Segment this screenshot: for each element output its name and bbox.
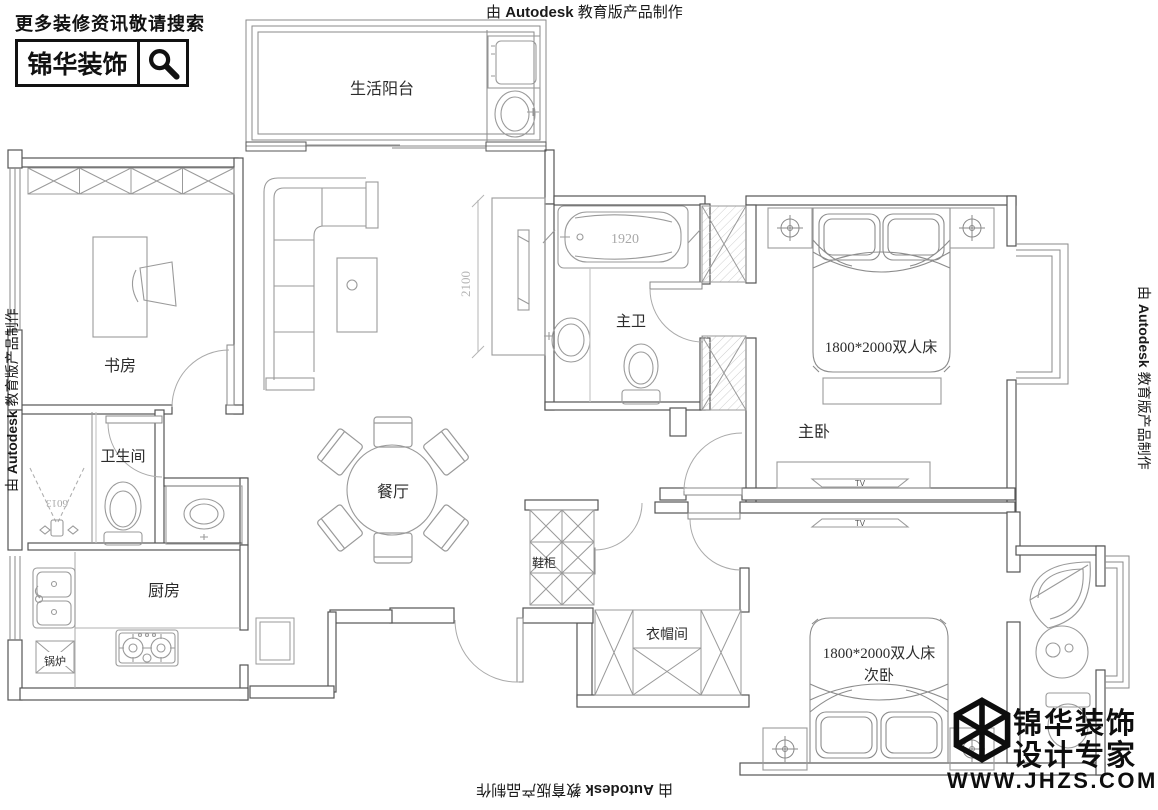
bathroom-toilet	[104, 482, 142, 545]
stove	[116, 630, 178, 666]
tv-label-secondary: TV	[855, 519, 866, 528]
round-basin	[1036, 626, 1088, 678]
tv-master	[777, 462, 930, 488]
bed-label-secondary: 1800*2000双人床	[823, 645, 936, 662]
room-label-dining: 餐厅	[377, 483, 409, 501]
wm-brand: Autodesk	[1136, 304, 1152, 368]
autodesk-watermark-bottom: 由 Autodesk 教育版产品制作	[483, 780, 673, 801]
wm-prefix: 由	[486, 4, 501, 21]
room-label-master-bath: 主卫	[616, 313, 646, 330]
desk	[93, 237, 176, 337]
wm-brand: Autodesk	[585, 781, 653, 798]
wm-brand: Autodesk	[4, 410, 20, 474]
dimensions	[472, 195, 484, 358]
walls	[8, 150, 1105, 775]
room-label-shoe-cabinet: 鞋柜	[532, 555, 556, 570]
wm-suffix: 教育版产品制作	[578, 4, 683, 21]
bed-label-master: 1800*2000双人床	[825, 339, 938, 356]
dim-2100-label: 2100	[458, 271, 473, 297]
balcony-basin	[495, 91, 539, 137]
tv-cabinet-living	[492, 198, 545, 355]
room-label-bathroom: 卫生间	[100, 448, 145, 465]
search-icon	[146, 46, 180, 80]
shower-code-label: 6013	[46, 497, 69, 509]
wm-prefix: 由	[4, 478, 20, 492]
wm-suffix: 教育版产品制作	[476, 781, 581, 798]
master-bath-toilet	[622, 344, 660, 404]
room-label-kitchen: 厨房	[148, 582, 180, 600]
autodesk-watermark-right: 由 Autodesk 教育版产品制作	[1134, 286, 1154, 470]
tv-label-master: TV	[855, 479, 866, 488]
kitchen-counter	[75, 552, 240, 688]
coffee-table	[337, 258, 377, 332]
room-label-master-bedroom: 主卧	[798, 423, 830, 441]
corner-shower	[1030, 562, 1090, 628]
wm-brand: Autodesk	[505, 4, 573, 21]
footer-website: WWW.JHZS.COM	[947, 768, 1158, 794]
room-label-study: 书房	[104, 357, 136, 375]
nightstand-master-left	[768, 208, 812, 248]
search-hint-text: 更多装修资讯敬请搜索	[15, 10, 205, 36]
room-label-balcony: 生活阳台	[350, 80, 414, 98]
floorplan-page: 生活阳台 书房 主卫 主卧 卫生间 餐厅 厨房 鞋柜 衣帽间 1800*2000…	[0, 0, 1158, 810]
wm-prefix: 由	[1136, 286, 1152, 300]
wm-suffix: 教育版产品制作	[4, 308, 20, 406]
magnifier-cell	[137, 42, 186, 84]
sofa	[264, 178, 378, 390]
nightstand-master-right	[950, 208, 994, 248]
tub-size-label: 1920	[611, 232, 639, 247]
brand-name: 锦华装饰	[18, 42, 137, 84]
secondary-bed	[810, 618, 948, 763]
vanity-basin	[166, 486, 242, 544]
room-label-secondary-bedroom: 次卧	[864, 667, 894, 684]
kitchen-sink	[33, 568, 75, 628]
bed-bench	[823, 378, 941, 404]
cube-logo-icon	[950, 696, 1014, 769]
wm-suffix: 教育版产品制作	[1136, 372, 1152, 470]
brand-search-box: 锦华装饰	[15, 39, 189, 87]
wm-prefix: 由	[658, 781, 673, 798]
floorplan-drawing: 生活阳台 书房 主卫 主卧 卫生间 餐厅 厨房 鞋柜 衣帽间 1800*2000…	[0, 0, 1158, 810]
autodesk-watermark-left: 由 Autodesk 教育版产品制作	[2, 308, 22, 492]
autodesk-watermark-top: 由 Autodesk 教育版产品制作	[486, 1, 683, 22]
boiler-label: 锅炉	[44, 655, 66, 668]
room-label-closet: 衣帽间	[646, 627, 688, 643]
washing-machine	[488, 36, 540, 88]
